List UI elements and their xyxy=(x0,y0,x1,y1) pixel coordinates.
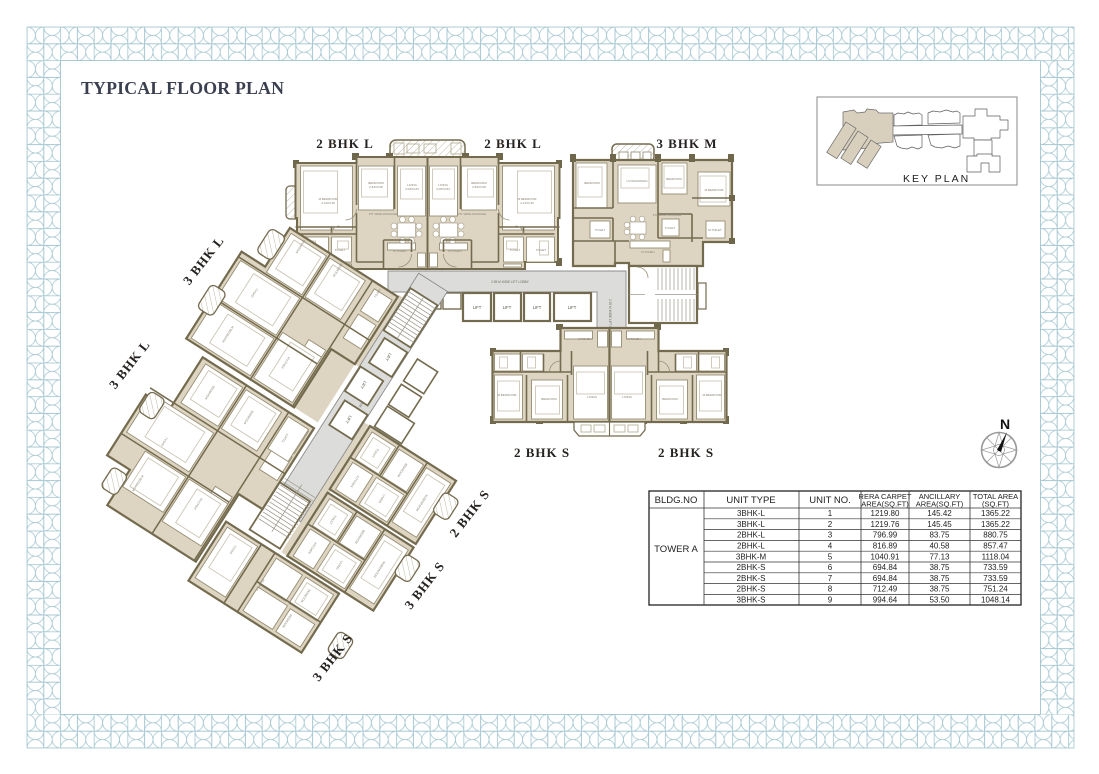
svg-text:2'6" WIDE PASSAGE: 2'6" WIDE PASSAGE xyxy=(369,212,398,216)
svg-text:TOILET: TOILET xyxy=(665,226,676,230)
svg-text:816.89: 816.89 xyxy=(873,542,898,551)
svg-text:2BHK-S: 2BHK-S xyxy=(737,585,766,594)
svg-text:38.75: 38.75 xyxy=(929,563,950,572)
svg-text:145.45: 145.45 xyxy=(927,520,952,529)
svg-text:2'6" WIDE PASSAGE: 2'6" WIDE PASSAGE xyxy=(653,213,682,217)
svg-text:TOILET: TOILET xyxy=(510,248,521,252)
svg-text:38.75: 38.75 xyxy=(929,574,950,583)
svg-text:BEDROOM: BEDROOM xyxy=(666,177,682,181)
svg-text:4: 4 xyxy=(828,542,833,551)
svg-text:2.84X3.68: 2.84X3.68 xyxy=(472,185,486,189)
svg-text:2 BHK S: 2 BHK S xyxy=(446,486,492,539)
svg-text:KITCHEN: KITCHEN xyxy=(448,249,461,253)
svg-text:1118.04: 1118.04 xyxy=(982,553,1010,562)
svg-text:TOWER A: TOWER A xyxy=(654,544,698,555)
svg-text:4.06X3.84: 4.06X3.84 xyxy=(436,187,450,191)
svg-text:77.13: 77.13 xyxy=(929,553,950,562)
svg-text:BEDROOM: BEDROOM xyxy=(662,397,678,401)
svg-text:2BHK-L: 2BHK-L xyxy=(737,542,766,551)
svg-text:1048.14: 1048.14 xyxy=(981,596,1010,605)
svg-text:4.14X3.35: 4.14X3.35 xyxy=(321,201,335,205)
svg-text:3BHK-S: 3BHK-S xyxy=(737,596,766,605)
svg-text:8: 8 xyxy=(828,585,833,594)
svg-text:KITCHEN: KITCHEN xyxy=(627,337,640,341)
svg-text:BLDG.NO: BLDG.NO xyxy=(655,495,698,506)
svg-text:3 BHK L: 3 BHK L xyxy=(106,337,153,392)
svg-text:694.84: 694.84 xyxy=(873,574,898,583)
svg-text:880.75: 880.75 xyxy=(983,531,1008,540)
svg-text:9: 9 xyxy=(828,596,833,605)
svg-text:7: 7 xyxy=(828,574,833,583)
svg-text:M.BEDROOM: M.BEDROOM xyxy=(703,393,722,397)
svg-text:M.BEDROOM: M.BEDROOM xyxy=(498,393,517,397)
svg-text:LIFT: LIFT xyxy=(533,305,542,310)
svg-text:1365.22: 1365.22 xyxy=(981,520,1010,529)
svg-text:40.58: 40.58 xyxy=(929,542,950,551)
svg-text:AREA(SQ.FT): AREA(SQ.FT) xyxy=(861,500,909,509)
svg-text:1219.76: 1219.76 xyxy=(871,520,900,529)
svg-text:2 BHK S: 2 BHK S xyxy=(514,445,570,460)
svg-text:6: 6 xyxy=(828,563,833,572)
svg-text:KEY PLAN: KEY PLAN xyxy=(903,173,970,185)
svg-text:1365.22: 1365.22 xyxy=(981,509,1010,518)
svg-text:KITCHEN: KITCHEN xyxy=(641,250,654,254)
svg-text:4.14X3.35: 4.14X3.35 xyxy=(520,201,534,205)
svg-text:2BHK-S: 2BHK-S xyxy=(737,574,766,583)
svg-text:1040.91: 1040.91 xyxy=(871,553,900,562)
svg-text:712.49: 712.49 xyxy=(873,585,898,594)
svg-text:TYPICAL FLOOR PLAN: TYPICAL FLOOR PLAN xyxy=(81,78,284,98)
svg-text:LIVING: LIVING xyxy=(622,395,633,399)
svg-text:694.84: 694.84 xyxy=(873,563,898,572)
svg-text:5: 5 xyxy=(828,553,833,562)
svg-text:2 BHK L: 2 BHK L xyxy=(316,136,374,151)
svg-text:733.59: 733.59 xyxy=(983,563,1008,572)
svg-text:M.TOILET: M.TOILET xyxy=(708,228,722,232)
svg-text:UNIT NO.: UNIT NO. xyxy=(809,495,851,506)
svg-text:LIVING/DINING: LIVING/DINING xyxy=(626,179,648,183)
svg-text:UNIT TYPE: UNIT TYPE xyxy=(726,495,775,506)
svg-text:3 BHK L: 3 BHK L xyxy=(180,233,227,288)
svg-text:83.75: 83.75 xyxy=(929,531,950,540)
svg-text:N: N xyxy=(1000,416,1010,432)
svg-text:4.06X3.84: 4.06X3.84 xyxy=(405,187,419,191)
svg-text:3 BHK M: 3 BHK M xyxy=(656,136,717,151)
svg-text:LIFT: LIFT xyxy=(568,305,577,310)
svg-text:LIFT: LIFT xyxy=(503,305,512,310)
svg-text:3: 3 xyxy=(828,531,833,540)
svg-text:2.84X3.68: 2.84X3.68 xyxy=(369,185,383,189)
svg-text:3BHK-L: 3BHK-L xyxy=(737,509,766,518)
svg-text:1219.80: 1219.80 xyxy=(871,509,900,518)
svg-text:BEDROOM: BEDROOM xyxy=(541,397,557,401)
svg-text:733.59: 733.59 xyxy=(983,574,1008,583)
svg-text:LIFT: LIFT xyxy=(473,305,482,310)
svg-text:2 BHK S: 2 BHK S xyxy=(658,445,714,460)
svg-text:2 BHK L: 2 BHK L xyxy=(484,136,542,151)
svg-text:TOILET: TOILET xyxy=(335,248,346,252)
svg-text:3BHK-M: 3BHK-M xyxy=(736,553,767,562)
svg-text:1: 1 xyxy=(828,509,833,518)
svg-text:2BHK-L: 2BHK-L xyxy=(737,531,766,540)
svg-text:751.24: 751.24 xyxy=(983,585,1008,594)
svg-text:3 BHK S: 3 BHK S xyxy=(309,630,355,683)
svg-text:796.99: 796.99 xyxy=(873,531,898,540)
svg-text:3BHK-L: 3BHK-L xyxy=(737,520,766,529)
svg-text:M.BEDROOM: M.BEDROOM xyxy=(705,188,724,192)
svg-text:(SQ.FT): (SQ.FT) xyxy=(982,500,1010,509)
svg-text:LIVING: LIVING xyxy=(587,395,598,399)
svg-text:53.50: 53.50 xyxy=(929,596,950,605)
svg-text:145.42: 145.42 xyxy=(927,509,952,518)
svg-text:2.55 M WIDE LIFT LOBBY: 2.55 M WIDE LIFT LOBBY xyxy=(491,280,530,284)
svg-text:KITCHEN: KITCHEN xyxy=(393,249,406,253)
svg-text:2BHK-S: 2BHK-S xyxy=(737,563,766,572)
svg-text:2'6" WIDE PASSAGE: 2'6" WIDE PASSAGE xyxy=(458,212,487,216)
svg-text:BEDROOM: BEDROOM xyxy=(584,181,600,185)
svg-text:38.75: 38.75 xyxy=(929,585,950,594)
svg-text:AREA(SQ.FT): AREA(SQ.FT) xyxy=(916,500,964,509)
svg-text:857.47: 857.47 xyxy=(983,542,1008,551)
svg-text:KITCHEN: KITCHEN xyxy=(578,337,591,341)
svg-text:TOILET: TOILET xyxy=(595,228,606,232)
svg-text:994.64: 994.64 xyxy=(873,596,898,605)
svg-text:TOILET: TOILET xyxy=(536,248,547,252)
svg-text:2: 2 xyxy=(828,520,833,529)
